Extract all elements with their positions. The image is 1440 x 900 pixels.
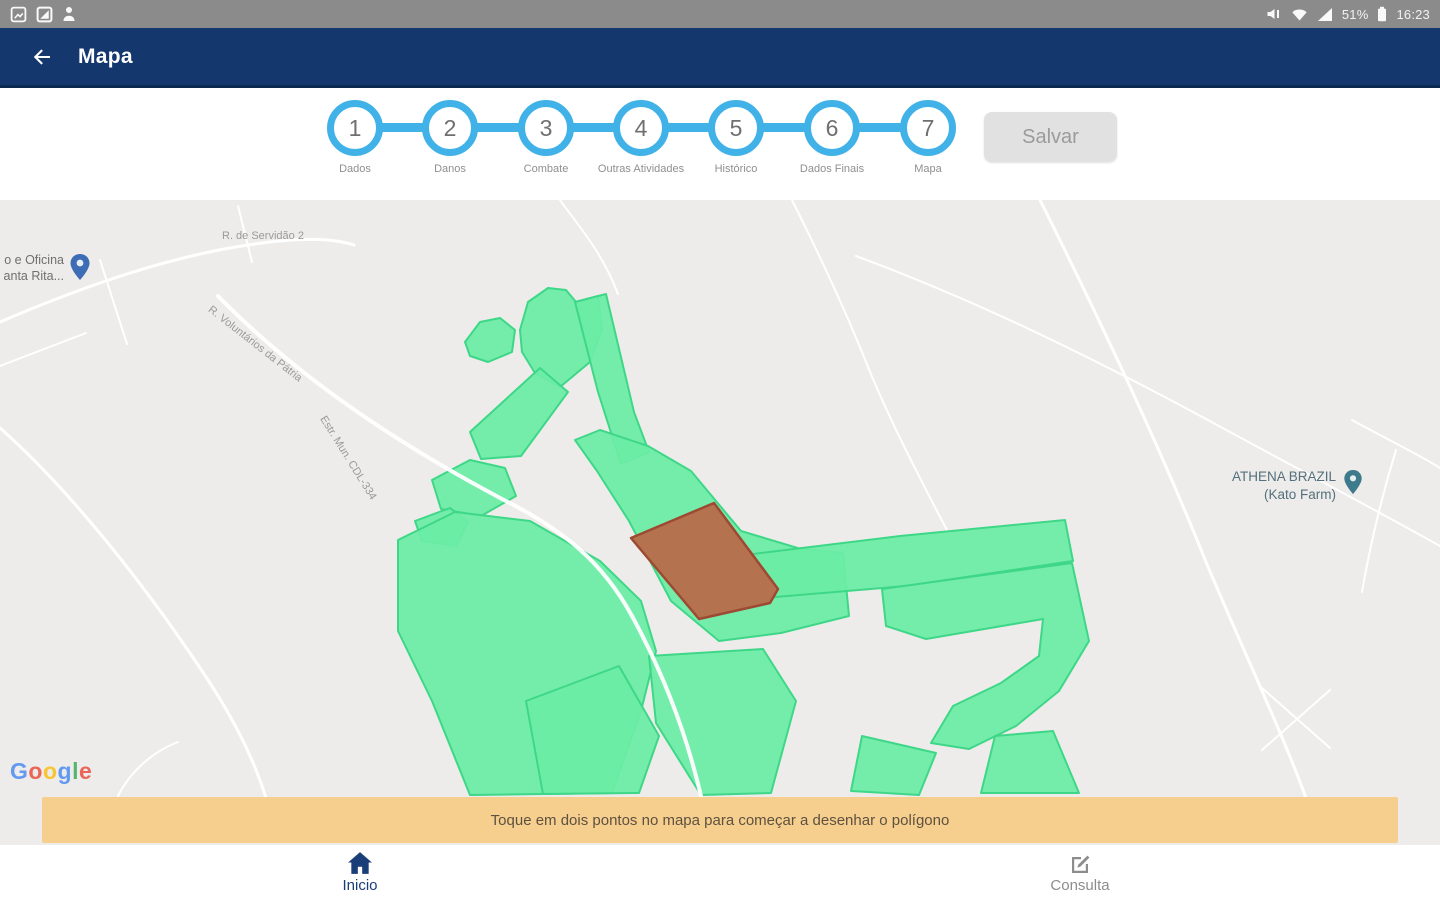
step-7: 7 Mapa: [883, 100, 973, 176]
step-3: 3 Combate: [501, 100, 591, 176]
status-bar-left: [10, 6, 76, 23]
stepper: 1 Dados 2 Danos 3 Combate 4 Outras Ativi…: [0, 91, 1440, 200]
nav-label: Consulta: [1050, 877, 1109, 894]
nav-item-inicio[interactable]: Inicio: [0, 845, 720, 900]
step-2: 2 Danos: [405, 100, 495, 176]
map-view[interactable]: R. de Servidão 2 o e Oficina anta Rita..…: [0, 200, 1440, 845]
mute-icon: [1266, 6, 1282, 22]
step-4-circle[interactable]: 4: [613, 100, 669, 156]
poi-label-athena: ATHENA BRAZIL (Kato Farm): [1200, 468, 1336, 504]
poi-label-line2: anta Rita...: [0, 268, 64, 284]
google-letter: e: [79, 758, 92, 784]
save-button[interactable]: Salvar: [984, 112, 1117, 162]
step-2-circle[interactable]: 2: [422, 100, 478, 156]
google-letter: o: [43, 758, 58, 784]
google-letter: l: [72, 758, 79, 784]
step-number: 1: [349, 115, 362, 142]
google-letter: G: [10, 758, 28, 784]
step-number: 3: [540, 115, 553, 142]
wifi-icon: [1291, 7, 1308, 22]
step-number: 6: [826, 115, 839, 142]
poi-label-line1: ATHENA BRAZIL: [1200, 468, 1336, 486]
step-6: 6 Dados Finais: [787, 100, 877, 176]
step-5-label: Histórico: [691, 162, 781, 176]
step-3-label: Combate: [501, 162, 591, 176]
step-1-circle[interactable]: 1: [327, 100, 383, 156]
poi-pin-left[interactable]: [71, 254, 90, 280]
app-header: Mapa: [0, 28, 1440, 88]
bottom-navigation: Inicio Consulta: [0, 845, 1440, 900]
screenshot-icon: [36, 6, 53, 23]
google-letter: g: [58, 758, 73, 784]
screenshot-icon: [10, 6, 27, 23]
step-3-circle[interactable]: 3: [518, 100, 574, 156]
step-6-circle[interactable]: 6: [804, 100, 860, 156]
step-6-label: Dados Finais: [787, 162, 877, 176]
step-number: 2: [444, 115, 457, 142]
step-5: 5 Histórico: [691, 100, 781, 176]
battery-icon: [1377, 6, 1387, 22]
step-number: 5: [730, 115, 743, 142]
step-1: 1 Dados: [310, 100, 400, 176]
step-4: 4 Outras Atividades: [596, 100, 686, 176]
clock: 16:23: [1396, 7, 1430, 22]
step-2-label: Danos: [405, 162, 495, 176]
step-5-circle[interactable]: 5: [708, 100, 764, 156]
poi-label-line2: (Kato Farm): [1200, 486, 1336, 504]
instruction-banner: Toque em dois pontos no mapa para começa…: [42, 797, 1398, 843]
step-number: 7: [922, 115, 935, 142]
arrow-left-icon: [30, 45, 54, 69]
back-button[interactable]: [14, 29, 70, 85]
step-number: 4: [635, 115, 648, 142]
cellular-icon: [1317, 7, 1333, 22]
poi-label-line1: o e Oficina: [0, 252, 64, 268]
step-7-circle[interactable]: 7: [900, 100, 956, 156]
google-attribution: Google: [10, 758, 92, 785]
step-4-label: Outras Atividades: [596, 162, 686, 176]
map-canvas: [0, 200, 1440, 845]
status-bar-right: 51% 16:23: [1266, 6, 1430, 22]
instruction-text: Toque em dois pontos no mapa para começa…: [491, 812, 950, 829]
poi-label-oficina: o e Oficina anta Rita...: [0, 252, 64, 285]
edit-icon: [1067, 851, 1093, 875]
nav-item-consulta[interactable]: Consulta: [720, 845, 1440, 900]
step-7-label: Mapa: [883, 162, 973, 176]
page-title: Mapa: [78, 45, 133, 69]
google-letter: o: [28, 758, 43, 784]
street-label-servidao: R. de Servidão 2: [222, 230, 304, 242]
home-icon: [347, 851, 373, 875]
person-icon: [62, 6, 76, 22]
status-bar: 51% 16:23: [0, 0, 1440, 28]
poi-pin-right[interactable]: [1344, 470, 1361, 494]
nav-label: Inicio: [342, 877, 377, 894]
battery-percent: 51%: [1342, 7, 1369, 22]
step-1-label: Dados: [310, 162, 400, 176]
